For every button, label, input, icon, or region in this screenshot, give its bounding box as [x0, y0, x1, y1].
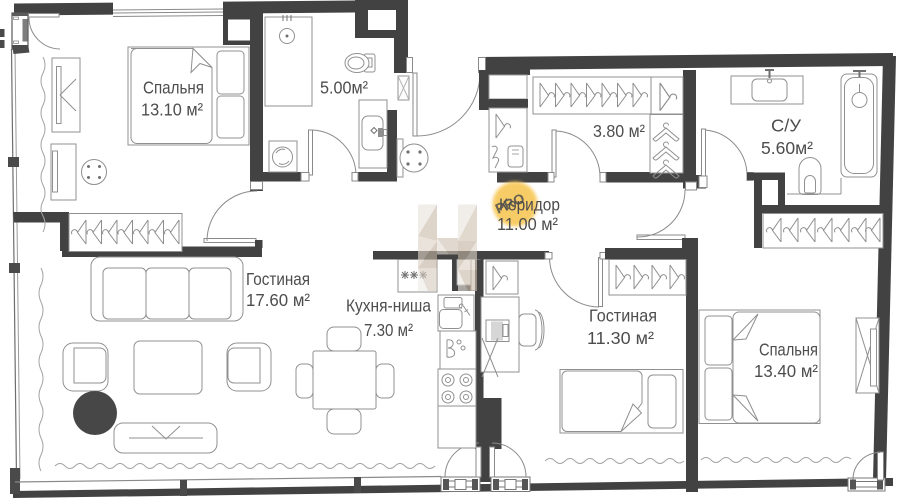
svg-text:11.00 м²: 11.00 м² — [497, 214, 558, 234]
svg-text:13.10 м²: 13.10 м² — [141, 100, 203, 120]
svg-text:Спальня: Спальня — [759, 340, 818, 360]
svg-text:3.80 м²: 3.80 м² — [593, 121, 645, 141]
svg-text:5.60м²: 5.60м² — [761, 138, 813, 158]
svg-text:17.60 м²: 17.60 м² — [246, 290, 310, 310]
svg-text:Спальня: Спальня — [143, 78, 204, 98]
svg-text:Гостиная: Гостиная — [589, 306, 657, 326]
svg-text:Гостиная: Гостиная — [246, 269, 310, 289]
svg-text:Коридор: Коридор — [499, 195, 560, 215]
svg-text:5.00м²: 5.00м² — [320, 78, 368, 98]
svg-text:С/У: С/У — [771, 116, 802, 136]
svg-text:11.30 м²: 11.30 м² — [587, 328, 654, 348]
svg-text:Кухня-ниша: Кухня-ниша — [346, 296, 431, 316]
svg-text:7.30 м²: 7.30 м² — [364, 320, 413, 340]
svg-text:13.40 м²: 13.40 м² — [754, 361, 818, 381]
